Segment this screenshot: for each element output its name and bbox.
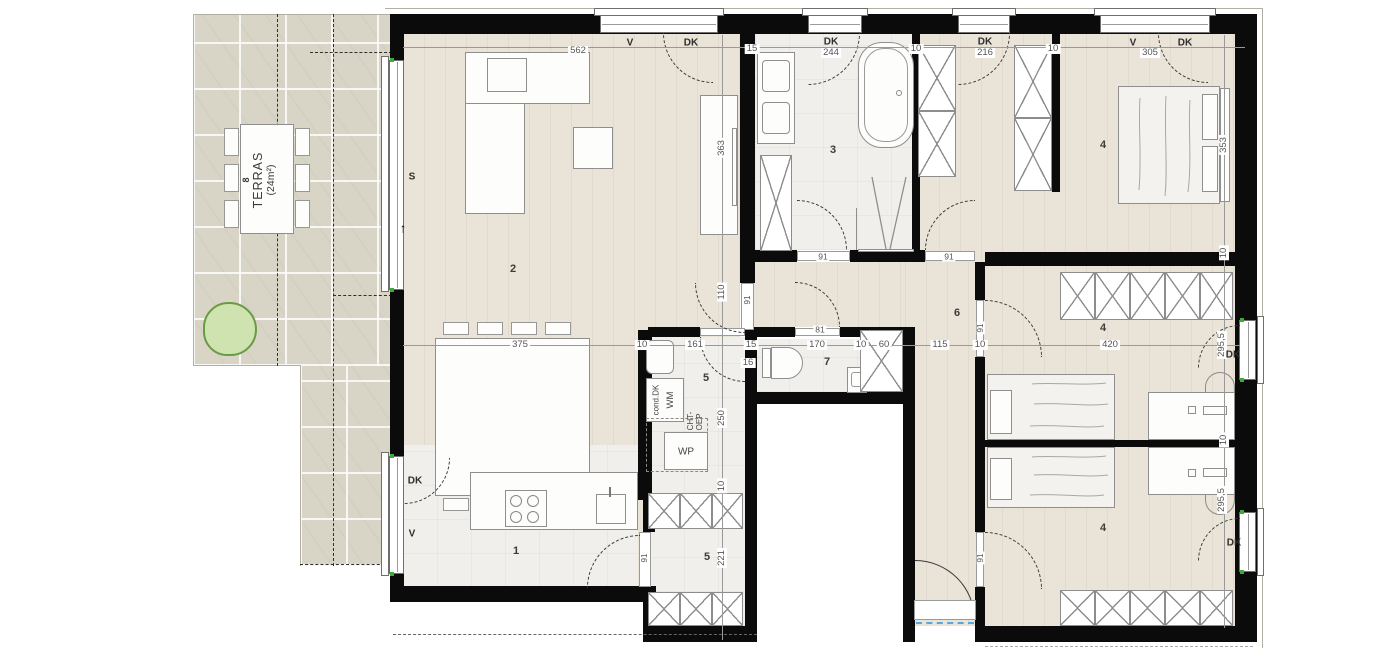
- shower: [862, 175, 914, 251]
- wall-utility-top: [648, 327, 700, 337]
- window-mark: [1240, 318, 1244, 322]
- window-bedmid-right: [1239, 320, 1256, 380]
- window-bath-top: [808, 15, 862, 33]
- window-label-dk: DK: [1227, 538, 1241, 549]
- dim-label: 295,5: [1217, 486, 1227, 514]
- bathtub-drain: [896, 90, 902, 96]
- window-frame-outer: [1257, 508, 1264, 576]
- dim-label: 170: [807, 340, 827, 350]
- wardrobe: [1095, 590, 1130, 626]
- window-dressing-top: [958, 15, 1010, 33]
- wardrobe: [1095, 272, 1130, 320]
- window-frame-outer: [381, 452, 389, 576]
- roofline-dashed-horizontal-2: [333, 295, 392, 296]
- window-mark: [390, 572, 394, 576]
- coffee-table: [573, 127, 613, 169]
- dashed-line-bottom-right: [985, 646, 1253, 647]
- storage-cabinet: [680, 592, 712, 626]
- roofline-dashed-vertical-2: [333, 14, 334, 566]
- bath-cabinet: [760, 155, 792, 251]
- dim-label: 244: [821, 48, 841, 58]
- cond-dk-label: cond.DK: [653, 385, 662, 416]
- bed-mid-pillow: [990, 390, 1012, 434]
- dressing-cabinet: [918, 45, 956, 111]
- dashed-line-bottom-left: [393, 634, 757, 635]
- window-mark: [1240, 570, 1244, 574]
- terrace-dashed-bottom-edge: [300, 564, 390, 565]
- window-label-dk: DK: [684, 38, 698, 49]
- washer-label: WM: [666, 392, 676, 409]
- room-number-kitchen: 1: [513, 545, 519, 557]
- bathtub-inner: [864, 48, 908, 142]
- window-mark: [390, 454, 394, 458]
- dim-label: 10: [717, 479, 727, 494]
- window-label-s: S: [409, 172, 416, 183]
- dressing-cabinet: [1014, 45, 1052, 118]
- vent-label-2: OEP: [696, 412, 705, 431]
- toilet-bowl: [771, 347, 803, 379]
- dim-label: 353: [1219, 135, 1229, 155]
- wall-bath-bottom-left: [740, 250, 797, 262]
- wall-bottom-right: [985, 626, 1237, 642]
- desk-item: [1188, 406, 1196, 414]
- kitchen-sink: [596, 494, 626, 524]
- wardrobe: [1165, 272, 1200, 320]
- floor-plan: 8 TERRAS (24m²): [0, 0, 1400, 656]
- dim-label: 10: [1219, 246, 1229, 261]
- terrace-floor-lower: [300, 366, 390, 566]
- storage-cabinet: [648, 493, 680, 529]
- door-dim: 91: [641, 552, 649, 565]
- door-dim: 91: [977, 552, 985, 565]
- room-number-hall: 6: [954, 307, 960, 319]
- exterior-notch: [757, 404, 903, 642]
- room-number-bed-mid: 4: [1100, 322, 1106, 334]
- dining-chair: [443, 322, 469, 335]
- sofa-tray: [487, 58, 527, 92]
- dim-label: 115: [930, 340, 949, 350]
- dining-chair: [443, 498, 469, 511]
- wall-living-bath: [740, 32, 755, 283]
- dining-chair: [511, 322, 537, 335]
- storage-cabinet: [712, 592, 743, 626]
- window-mark: [390, 58, 394, 62]
- room-number-utility: 5: [703, 372, 709, 384]
- washbasin: [762, 102, 790, 134]
- wall-utility-right: [745, 327, 757, 642]
- room-number-bath: 3: [830, 144, 836, 156]
- dim-label: 16: [741, 358, 756, 368]
- heat-pump-label: WP: [678, 447, 694, 458]
- burner: [527, 495, 539, 507]
- storage-cabinet: [648, 592, 680, 626]
- door-dim: 91: [816, 253, 829, 262]
- wall-kitchen-bottom: [390, 586, 656, 602]
- window-mark: [1240, 378, 1244, 382]
- dim-label: 363: [717, 138, 727, 158]
- dim-label: 161: [685, 340, 705, 350]
- wall-wc-top-left: [753, 327, 795, 337]
- bed-mid-duvet: [1014, 374, 1114, 440]
- storage-cabinet: [712, 493, 743, 529]
- window-label-dk: DK: [824, 37, 838, 48]
- dining-chair: [545, 322, 571, 335]
- window-frame-outer: [381, 56, 389, 292]
- dim-label: 10: [1046, 44, 1061, 54]
- window-label-v: V: [1130, 38, 1137, 49]
- dim-label: 15: [744, 340, 759, 350]
- wall-hall-right-b: [975, 357, 985, 532]
- dim-label: 10: [854, 340, 869, 350]
- wardrobe: [1200, 272, 1233, 320]
- desk-item: [1188, 469, 1196, 477]
- room-number-bed-bot: 4: [1100, 522, 1106, 534]
- terrace-name: TERRAS: [251, 152, 265, 209]
- shower-screen: [856, 208, 857, 250]
- door-dim: 91: [977, 322, 985, 335]
- wall-bedtop-bedmid: [985, 252, 1237, 266]
- wardrobe: [1130, 272, 1165, 320]
- door-dim: 91: [942, 253, 955, 262]
- dim-label: 15: [745, 44, 760, 54]
- wall-dressing-bedroom: [1052, 32, 1060, 192]
- dining-chair: [477, 322, 503, 335]
- dim-label: 110: [717, 282, 727, 301]
- window-label-dk: DK: [978, 37, 992, 48]
- window-mark: [390, 288, 394, 292]
- dim-label: 216: [975, 48, 995, 58]
- wall-left-b: [390, 288, 404, 458]
- dim-label: 375: [510, 340, 530, 350]
- dim-label: 562: [568, 46, 588, 56]
- terrace-chair: [295, 128, 310, 156]
- dim-label: 221: [717, 548, 727, 568]
- storage-cabinet: [680, 493, 712, 529]
- dim-label: 10: [909, 44, 924, 54]
- wardrobe: [1200, 590, 1233, 626]
- window-label-v: V: [627, 38, 634, 49]
- window-living-top: [600, 15, 718, 33]
- terrace-edge-step: [193, 365, 301, 366]
- wardrobe: [1130, 590, 1165, 626]
- terrace-number: 8: [241, 152, 251, 209]
- wall-hall-right-c: [975, 587, 985, 642]
- window-label-dk: DK: [408, 476, 422, 487]
- terrace-chair: [295, 164, 310, 192]
- wardrobe: [1060, 272, 1095, 320]
- wall-left-a: [390, 14, 404, 62]
- terrace-chair: [224, 128, 239, 156]
- bed-top-pillow: [1202, 146, 1218, 192]
- wall-bedmid-bedbot: [985, 440, 1237, 447]
- terrace-edge-left-lower: [300, 365, 301, 566]
- window-label-dk: DK: [1226, 350, 1240, 361]
- wall-hall-left: [903, 327, 915, 642]
- entry-threshold: [916, 622, 974, 624]
- terrace-label: 8 TERRAS (24m²): [241, 152, 277, 209]
- entry-door-slab: [914, 600, 976, 620]
- kitchen-tap: [609, 487, 611, 497]
- slide-arrow-icon: ↑: [400, 221, 407, 236]
- sofa-chaise: [465, 103, 525, 214]
- dressing-cabinet: [1014, 118, 1052, 191]
- terrace-edge-left: [193, 14, 194, 366]
- window-label-dk: DK: [1178, 38, 1192, 49]
- washbasin: [762, 60, 790, 92]
- bed-bot-pillow: [990, 458, 1012, 500]
- door-dim: 91: [744, 294, 752, 307]
- room-number-wc: 7: [824, 356, 830, 368]
- tree-icon: [203, 302, 257, 356]
- toilet-tank: [762, 348, 771, 378]
- roofline-dashed-horizontal-1: [310, 52, 392, 53]
- sofa-horizontal: [465, 52, 590, 104]
- door-dim: 81: [813, 326, 826, 335]
- room-number-living: 2: [510, 263, 516, 275]
- terrace-chair: [224, 164, 239, 192]
- dressing-cabinet: [918, 111, 956, 177]
- dim-label: 305: [1140, 48, 1160, 58]
- burner: [510, 511, 522, 523]
- terrace-area: (24m²): [265, 152, 277, 209]
- window-mark: [1240, 510, 1244, 514]
- wall-hall-right-a: [975, 262, 985, 300]
- wall-wc-bottom: [753, 392, 903, 404]
- room-number-bed-top: 4: [1100, 139, 1106, 151]
- dim-label: 10: [973, 340, 988, 350]
- terrace-edge-top: [193, 14, 390, 15]
- wardrobe: [1165, 590, 1200, 626]
- dim-label: 10: [1219, 433, 1229, 448]
- window-bedbot-right: [1239, 512, 1256, 572]
- tv-screen: [732, 128, 737, 206]
- terrace-chair: [224, 200, 239, 228]
- burner: [527, 511, 539, 523]
- bed-top-pillow: [1202, 94, 1218, 140]
- window-bedroom-top: [1100, 15, 1210, 33]
- dim-label: 420: [1100, 340, 1120, 350]
- window-frame-outer: [1257, 316, 1264, 384]
- terrace-chair: [295, 200, 310, 228]
- dim-label: 60: [877, 340, 892, 350]
- burner: [510, 495, 522, 507]
- wardrobe: [1060, 590, 1095, 626]
- window-label-v: V: [409, 529, 416, 540]
- dim-label: 250: [717, 408, 727, 428]
- shower-screen-bar: [858, 249, 914, 252]
- window-kitchen-left: [389, 456, 404, 574]
- vent-label: CHT- OEP: [687, 412, 705, 431]
- dim-label: 10: [635, 340, 650, 350]
- bed-bot-duvet: [1014, 447, 1114, 508]
- window-living-sliding: [389, 60, 404, 290]
- room-number-storage: 5: [704, 551, 710, 563]
